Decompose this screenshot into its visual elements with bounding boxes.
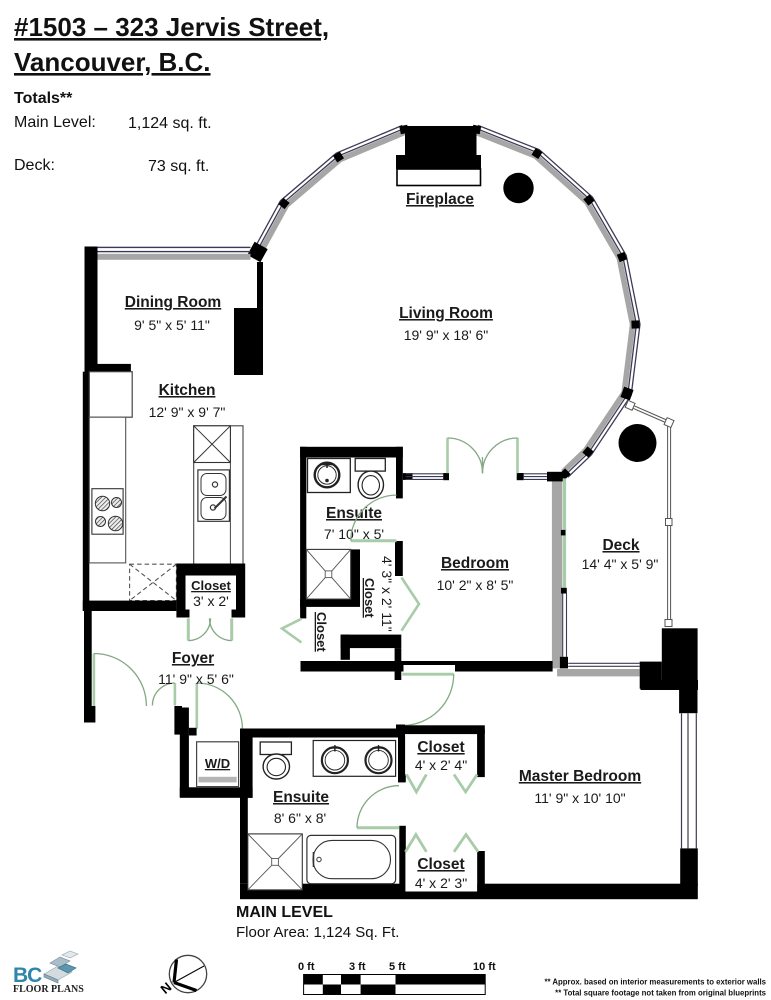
- svg-text:Totals**: Totals**: [14, 90, 73, 107]
- svg-text:10' 2" x 8' 5": 10' 2" x 8' 5": [437, 577, 514, 593]
- svg-text:8' 6" x 8': 8' 6" x 8': [274, 810, 326, 826]
- svg-text:MAIN LEVEL: MAIN LEVEL: [236, 904, 333, 921]
- svg-text:0 ft: 0 ft: [298, 961, 315, 973]
- svg-text:4' 3" x 2' 11": 4' 3" x 2' 11": [379, 556, 395, 632]
- svg-text:Master Bedroom: Master Bedroom: [519, 768, 641, 785]
- svg-text:#1503 – 323 Jervis Street,: #1503 – 323 Jervis Street,: [14, 12, 329, 42]
- svg-text:4' x 2' 4": 4' x 2' 4": [415, 757, 467, 773]
- svg-text:73 sq. ft.: 73 sq. ft.: [148, 158, 209, 175]
- svg-text:Ensuite: Ensuite: [273, 789, 329, 806]
- svg-text:1,124 sq. ft.: 1,124 sq. ft.: [128, 115, 212, 132]
- svg-text:** Approx. based on interior m: ** Approx. based on interior measurement…: [544, 978, 766, 987]
- svg-text:Closet: Closet: [362, 578, 377, 618]
- svg-text:Closet: Closet: [417, 739, 464, 756]
- svg-text:FLOOR PLANS: FLOOR PLANS: [13, 984, 84, 995]
- svg-text:11' 9" x 5' 6": 11' 9" x 5' 6": [158, 671, 234, 687]
- svg-text:Closet: Closet: [191, 578, 231, 593]
- svg-text:Living Room: Living Room: [399, 305, 493, 322]
- svg-text:** Total square footage not ta: ** Total square footage not taken from o…: [555, 989, 766, 998]
- svg-text:5 ft: 5 ft: [389, 961, 406, 973]
- svg-text:Closet: Closet: [314, 612, 329, 652]
- svg-text:W/D: W/D: [205, 756, 230, 771]
- svg-text:Deck:: Deck:: [14, 157, 55, 174]
- svg-text:Vancouver, B.C.: Vancouver, B.C.: [14, 47, 211, 77]
- svg-text:3 ft: 3 ft: [349, 961, 366, 973]
- svg-text:3' x 2': 3' x 2': [193, 593, 229, 609]
- svg-text:19' 9" x 18' 6": 19' 9" x 18' 6": [404, 327, 489, 343]
- svg-text:10 ft: 10 ft: [473, 961, 496, 973]
- svg-text:9' 5" x 5' 11": 9' 5" x 5' 11": [134, 317, 210, 333]
- svg-text:Ensuite: Ensuite: [326, 505, 382, 522]
- svg-text:Fireplace: Fireplace: [406, 191, 474, 208]
- svg-text:Main Level:: Main Level:: [14, 114, 96, 131]
- svg-text:Dining Room: Dining Room: [125, 294, 221, 311]
- svg-text:12' 9" x 9' 7": 12' 9" x 9' 7": [149, 404, 226, 420]
- svg-text:11' 9" x 10' 10": 11' 9" x 10' 10": [534, 790, 625, 806]
- svg-text:Kitchen: Kitchen: [159, 382, 216, 399]
- svg-text:14' 4" x 5' 9": 14' 4" x 5' 9": [582, 556, 659, 572]
- svg-text:Floor Area: 1,124 Sq. Ft.: Floor Area: 1,124 Sq. Ft.: [236, 924, 399, 941]
- svg-text:Foyer: Foyer: [172, 650, 214, 667]
- svg-text:Closet: Closet: [417, 856, 464, 873]
- svg-text:Deck: Deck: [602, 537, 639, 554]
- svg-text:Bedroom: Bedroom: [441, 555, 509, 572]
- svg-text:4' x 2' 3": 4' x 2' 3": [415, 875, 467, 891]
